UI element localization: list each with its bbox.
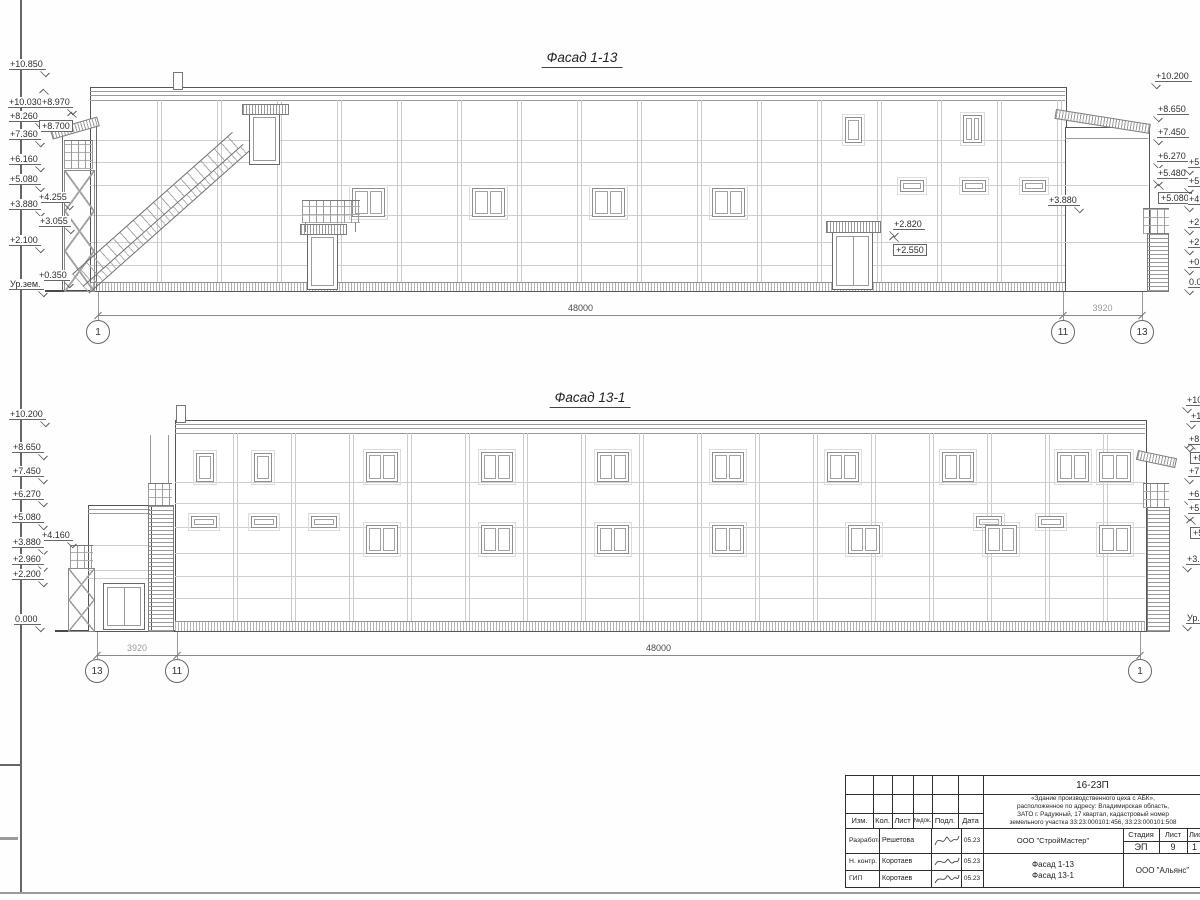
sheet-name: Фасад 1-13 Фасад 13-1	[983, 853, 1123, 887]
dimension-label: 48000	[643, 643, 674, 653]
elevation-mark: +6.	[1188, 489, 1200, 500]
elevation-mark: +6.270	[1157, 151, 1189, 162]
window-pane	[715, 528, 727, 551]
window-pane	[844, 455, 856, 479]
elevation-mark-label: +10.200	[1155, 71, 1192, 82]
tower-railing	[70, 545, 93, 569]
window-pane	[600, 528, 612, 551]
axis-bubble: 1	[1128, 659, 1152, 683]
role-developer-date: 05.23	[961, 828, 983, 853]
dimension-label: 3920	[124, 643, 150, 653]
window-pane	[498, 455, 510, 479]
window	[848, 525, 880, 554]
window-pane	[729, 528, 741, 551]
column-joint-line	[457, 100, 462, 282]
elevation-mark: +7.360	[9, 129, 41, 140]
window	[196, 453, 214, 482]
elevation-mark-label: +8.650	[12, 442, 44, 453]
tb-col-data: Дата	[958, 813, 983, 828]
elevation-mark: +6.270	[12, 489, 44, 500]
elevation-mark-label: +8.700	[39, 120, 73, 132]
elevation-mark-label: +10.030	[8, 97, 45, 108]
right-ladder-railing	[1143, 483, 1169, 508]
column-joint-line	[465, 433, 470, 621]
elevation-mark: +10.030	[8, 97, 45, 108]
plinth-band	[90, 282, 1065, 291]
elevation-mark: +4.160	[41, 530, 73, 541]
elevation-mark: +3.	[1186, 554, 1200, 565]
window	[481, 525, 513, 554]
elevation-mark-label: Ур.	[1186, 613, 1200, 624]
elevation-mark-label: +8.650	[1157, 104, 1189, 115]
window	[254, 453, 272, 482]
ladder-top-railing	[148, 483, 172, 506]
window-pane	[974, 118, 980, 140]
design-organization: ООО "СтройМастер"	[983, 828, 1123, 853]
drawing-sheet: Фасад 1-13 Фасад 13-1 +10.850+10.030+8.9…	[0, 0, 1200, 900]
column-joint-line	[233, 433, 238, 621]
elevation-mark: 0.0	[1188, 277, 1200, 288]
elevation-mark-label: +6.270	[1157, 151, 1189, 162]
elevation-mark-label: +6.160	[9, 154, 41, 165]
tower-x-bracing	[68, 568, 95, 632]
elevation-mark: +10.200	[9, 409, 46, 420]
column-joint-line	[157, 100, 162, 282]
window-pane	[865, 528, 877, 551]
parapet-joint-line	[175, 428, 1145, 429]
elevation-mark: +8.970	[41, 97, 73, 108]
column-joint-line	[291, 433, 296, 621]
elevation-mark: +5.	[1188, 503, 1200, 514]
elevation-mark: +3.880	[12, 537, 44, 548]
column-joint-line	[637, 100, 642, 282]
elevation-mark: +4.255	[38, 192, 70, 203]
column-joint-line	[929, 433, 934, 621]
elevation-mark-label: +2.960	[12, 554, 44, 565]
sheets-label: Лис	[1187, 828, 1200, 841]
sheets-total: 1	[1187, 841, 1200, 853]
elevation-arrow-icon	[35, 623, 45, 633]
window-pane	[1102, 455, 1114, 479]
annex-joint-line	[88, 578, 150, 579]
window	[1099, 452, 1131, 482]
elevation-mark: +8.700	[39, 120, 73, 132]
sheet-bottom-edge	[0, 892, 1200, 894]
window-pane	[988, 528, 1000, 551]
window-pane	[369, 455, 381, 479]
elevation-mark: +6.160	[9, 154, 41, 165]
axis-bubble: 13	[1130, 320, 1154, 344]
dimension-line	[98, 315, 1142, 316]
elevation-mark-label: +3.880	[12, 537, 44, 548]
elevation-arrow-icon	[35, 183, 45, 193]
elevation-mark-label: +8.	[1190, 452, 1200, 464]
elevation-mark-label: +2.550	[893, 244, 927, 256]
elevation-mark-label: +2.200	[12, 569, 44, 580]
panel-joint-line	[175, 598, 1145, 599]
elevation-mark: +2.	[1188, 237, 1200, 248]
window-pane	[851, 528, 863, 551]
column-joint-line	[397, 100, 402, 282]
project-description: «Здание производственного цеха с АБК», р…	[985, 794, 1200, 828]
elevation-mark-label: +3.880	[1048, 195, 1080, 206]
door	[249, 113, 280, 165]
role-gip-label: ГИП	[847, 870, 880, 887]
tb-col-list: Лист	[892, 813, 913, 828]
elevation-arrow-icon	[38, 451, 48, 461]
window	[472, 188, 505, 217]
elevation-mark: +7.450	[1157, 127, 1189, 138]
elevation-mark-label: +2.100	[9, 235, 41, 246]
column-joint-line	[877, 100, 882, 282]
parapet-joint-line	[90, 91, 1065, 92]
elevation-mark: +7.450	[12, 466, 44, 477]
elevation-mark: +5.	[1188, 176, 1200, 187]
annex-band-line	[1065, 138, 1148, 139]
elevation-arrow-icon	[35, 138, 45, 148]
role-ncontrol-label: Н. контр.	[847, 853, 880, 870]
window-pane	[498, 528, 510, 551]
window-pane	[1025, 183, 1043, 189]
elevation-mark-label: +5.080	[9, 174, 41, 185]
column-joint-line	[813, 433, 818, 621]
window-pane	[199, 456, 211, 479]
column-joint-line	[217, 100, 222, 282]
window	[481, 452, 513, 482]
window-pane	[830, 455, 842, 479]
window-pane	[903, 183, 921, 189]
column-joint-line	[581, 433, 586, 621]
column-joint-line	[755, 433, 760, 621]
tower-railing	[64, 140, 93, 169]
elevation-mark-label: +4.255	[38, 192, 70, 203]
parapet-joint-line	[90, 95, 1065, 96]
elevation-arrow-icon	[38, 475, 48, 485]
elevation-mark: +2.100	[9, 235, 41, 246]
elevation-mark: +10.200	[1155, 71, 1192, 82]
elevation-mark-label: +3.	[1186, 554, 1200, 565]
column-joint-line	[697, 433, 702, 621]
tb-col-podl: Подл.	[932, 813, 958, 828]
elevation-mark-label: +5.	[1190, 527, 1200, 539]
window-pane	[729, 455, 741, 479]
sheet-frame-tick-lower	[0, 837, 18, 840]
ladder-cage	[148, 505, 174, 632]
vent-window	[900, 180, 924, 192]
elevation-mark: +8.650	[1157, 104, 1189, 115]
window-pane	[965, 183, 983, 189]
elevation-mark-label: +10.850	[9, 59, 46, 70]
elevation-mark: +8.	[1190, 452, 1200, 464]
elevation-mark: +2.960	[12, 554, 44, 565]
vent-window	[251, 516, 277, 528]
tb-col-izm: Изм.	[846, 813, 873, 828]
window-pane	[370, 191, 383, 214]
window-pane	[1102, 528, 1114, 551]
window	[597, 525, 629, 554]
window	[827, 452, 859, 482]
window-pane	[1074, 455, 1086, 479]
elevation-arrow-icon	[40, 68, 50, 78]
axis-bubble: 11	[1051, 320, 1075, 344]
window-pane	[1116, 528, 1128, 551]
axis-bubble: 1	[86, 320, 110, 344]
panel-joint-line	[175, 482, 1145, 483]
role-developer-label: Разработал	[847, 828, 880, 853]
window	[592, 188, 625, 217]
elevation-mark: +5.	[1188, 157, 1200, 168]
role-gip-name: Коротаев	[880, 870, 932, 887]
dimension-line	[97, 655, 1140, 656]
vent-window	[311, 516, 337, 528]
axis-bubble: 11	[165, 659, 189, 683]
window-pane	[610, 191, 623, 214]
plinth-band	[175, 621, 1145, 631]
role-gip-date: 05.23	[961, 870, 983, 887]
window	[597, 452, 629, 482]
column-joint-line	[523, 433, 528, 621]
elevation-arrow-icon	[38, 521, 48, 531]
elevation-mark-label: +7.450	[1157, 127, 1189, 138]
tb-col-kol: Кол.	[873, 813, 892, 828]
window-pane	[730, 191, 743, 214]
elevation-arrow-icon	[35, 163, 45, 173]
elevation-mark-label: +2.820	[893, 219, 925, 230]
landing-post	[355, 222, 356, 232]
elevation-arrow-icon	[40, 418, 50, 428]
column-joint-line	[937, 100, 942, 282]
column-joint-line	[997, 100, 1002, 282]
elevation-mark-label: +3.055	[39, 216, 71, 227]
right-ladder-railing	[1143, 208, 1169, 234]
column-joint-line	[517, 100, 522, 282]
elevation-mark: +8.650	[12, 442, 44, 453]
column-joint-line	[639, 433, 644, 621]
door-canopy	[826, 221, 881, 233]
elevation-mark-label: +3.880	[9, 199, 41, 210]
window-pane	[1116, 455, 1128, 479]
contractor-organization: ООО "Альянс"	[1123, 853, 1200, 887]
elevation-arrow-icon	[35, 244, 45, 254]
window-pane	[490, 191, 503, 214]
facade-1-13-title: Фасад 1-13	[542, 50, 623, 68]
sheet-number: 9	[1159, 841, 1187, 853]
window-pane	[254, 519, 274, 525]
sheet-label: Лист	[1159, 828, 1187, 841]
window-pane	[600, 455, 612, 479]
window-pane	[383, 528, 395, 551]
window	[942, 452, 974, 482]
window	[366, 525, 398, 554]
right-ladder-cage	[1147, 233, 1169, 292]
elevation-mark: +3.880	[9, 199, 41, 210]
sheet-frame-tick-upper	[0, 764, 20, 766]
axis-bubble: 13	[85, 659, 109, 683]
column-joint-line	[407, 433, 412, 621]
door-canopy	[300, 224, 347, 235]
elevation-mark-label: +8.970	[41, 97, 73, 108]
role-ncontrol-name: Коротаев	[880, 853, 932, 870]
role-ncontrol-date: 05.23	[961, 853, 983, 870]
window	[845, 117, 862, 143]
window	[1057, 452, 1089, 482]
window-pane	[966, 118, 972, 140]
window-pane	[1060, 455, 1072, 479]
signature-gip	[932, 870, 961, 887]
window-pane	[1041, 519, 1061, 525]
ladder-rail	[168, 435, 169, 483]
elevation-mark: +3.880	[1048, 195, 1080, 206]
signature-ncontrol	[932, 853, 961, 870]
window	[963, 115, 982, 143]
column-joint-line	[757, 100, 762, 282]
vent-window	[191, 516, 217, 528]
window-pane	[959, 455, 971, 479]
annex-joint-line	[1065, 185, 1148, 186]
annex-band-line	[88, 513, 150, 514]
elevation-mark: +10.	[1186, 395, 1200, 406]
stage-label: Стадия	[1123, 828, 1159, 841]
elevation-mark: +2.	[1188, 217, 1200, 228]
parapet-joint-line	[175, 433, 1145, 434]
stage-value: ЭП	[1123, 841, 1159, 853]
parapet-joint-line	[175, 424, 1145, 425]
window	[366, 452, 398, 482]
annex-joint-line	[1065, 242, 1148, 243]
elevation-mark-label: +10.200	[9, 409, 46, 420]
panel-joint-line	[175, 503, 1145, 504]
landing-post	[305, 222, 306, 232]
window-pane	[484, 528, 496, 551]
window-pane	[715, 191, 728, 214]
elevation-mark: Ур.	[1186, 613, 1200, 624]
column-joint-line	[697, 100, 702, 282]
window-pane	[257, 456, 269, 479]
elevation-mark-label: +10.	[1186, 395, 1200, 406]
column-joint-line	[817, 100, 822, 282]
title-block: Изм. Кол. Лист №док. Подл. Дата 16-23П «…	[845, 775, 1200, 888]
window-pane	[848, 120, 859, 140]
right-ladder-cage	[1147, 507, 1170, 632]
roof-stack	[176, 405, 186, 423]
elevation-mark: +7.	[1188, 466, 1200, 477]
dimension-label: 3920	[1089, 303, 1115, 313]
ladder-rail	[150, 435, 151, 483]
elevation-mark: +2.550	[893, 244, 927, 256]
window	[712, 525, 744, 554]
elevation-mark: +2.200	[12, 569, 44, 580]
window-pane	[595, 191, 608, 214]
elevation-mark: +4.	[1188, 194, 1200, 205]
window-pane	[484, 455, 496, 479]
elevation-mark: +10.850	[9, 59, 46, 70]
elevation-mark: +8.260	[9, 111, 41, 122]
elevation-mark: +5.080	[12, 512, 44, 523]
window-pane	[369, 528, 381, 551]
elevation-mark: +2.820	[893, 219, 925, 230]
elevation-mark-label: +8.260	[9, 111, 41, 122]
elevation-mark-label: +4.160	[41, 530, 73, 541]
elevation-mark-label: +6.270	[12, 489, 44, 500]
signature-developer	[932, 828, 961, 853]
elevation-mark: Ур.зем.	[9, 279, 44, 290]
vent-window	[1022, 180, 1046, 192]
column-joint-line	[1057, 100, 1062, 282]
elevation-mark-label: Ур.зем.	[9, 279, 44, 290]
double-door	[103, 583, 145, 630]
roof-stack	[173, 72, 183, 90]
elevation-mark: +3.055	[39, 216, 71, 227]
elevation-arrow-icon	[38, 498, 48, 508]
window-pane	[475, 191, 488, 214]
facade-13-1-title: Фасад 13-1	[550, 390, 631, 408]
elevation-mark-label: +5.080	[12, 512, 44, 523]
elevation-mark-label: +7.450	[12, 466, 44, 477]
column-joint-line	[349, 433, 354, 621]
window-pane	[383, 455, 395, 479]
window-pane	[194, 519, 214, 525]
elevation-mark-label: +7.360	[9, 129, 41, 140]
stair-landing-railing	[302, 200, 360, 223]
window	[712, 452, 744, 482]
window-pane	[715, 455, 727, 479]
elevation-mark: 0.000	[14, 614, 41, 625]
double-door	[832, 232, 873, 290]
annex-band-line	[88, 509, 150, 510]
elevation-mark: +10.	[1190, 411, 1200, 422]
tb-col-ndok: №док.	[913, 813, 932, 828]
vent-window	[962, 180, 986, 192]
elevation-mark: +0.	[1188, 257, 1200, 268]
window-pane	[614, 528, 626, 551]
panel-joint-line	[175, 576, 1145, 577]
window	[712, 188, 745, 217]
window-pane	[614, 455, 626, 479]
window-pane	[314, 519, 334, 525]
window	[985, 525, 1017, 554]
elevation-mark: +5.080	[9, 174, 41, 185]
column-joint-line	[577, 100, 582, 282]
annex-joint-line	[88, 545, 150, 546]
door-canopy	[242, 104, 289, 115]
window-pane	[1002, 528, 1014, 551]
dimension-label: 48000	[565, 303, 596, 313]
document-code: 16-23П	[983, 776, 1200, 794]
annex-joint-line	[88, 570, 150, 571]
elevation-arrow-icon	[38, 578, 48, 588]
role-developer-name: Решетова	[880, 828, 932, 853]
vent-window	[1038, 516, 1064, 528]
elevation-mark: +5.	[1190, 527, 1200, 539]
door	[307, 233, 338, 290]
window-pane	[945, 455, 957, 479]
window	[1099, 525, 1131, 554]
